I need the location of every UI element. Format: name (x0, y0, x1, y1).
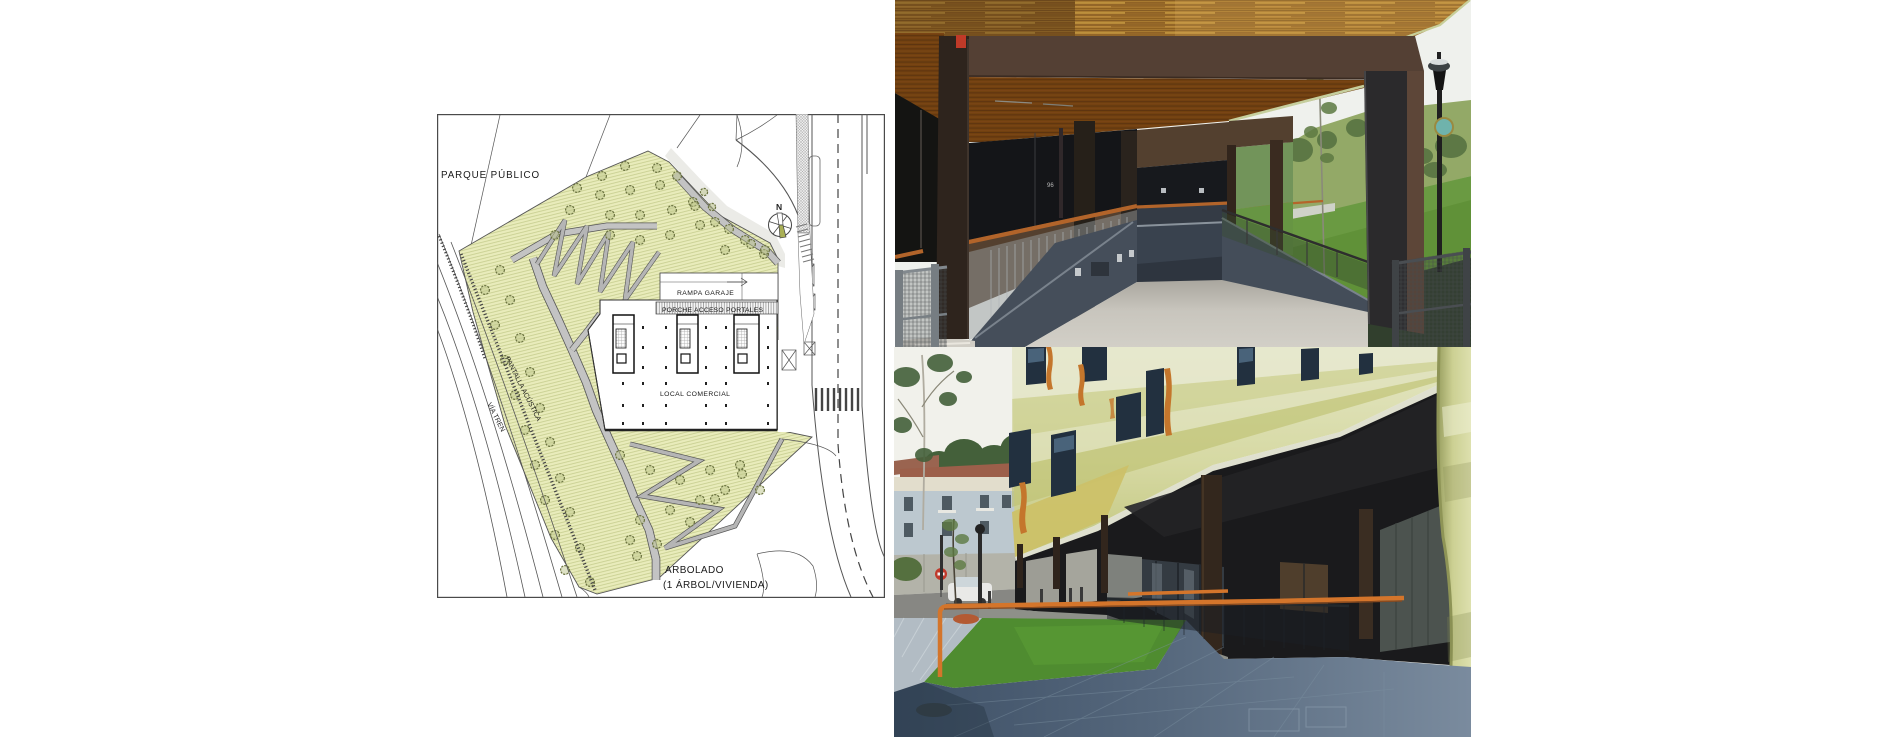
svg-text:RAMPA GARAJE: RAMPA GARAJE (677, 290, 734, 297)
svg-text:PORCHE ACCESO PORTALES: PORCHE ACCESO PORTALES (662, 307, 763, 314)
svg-text:PARQUE PÚBLICO: PARQUE PÚBLICO (441, 170, 540, 181)
svg-text:N: N (776, 202, 782, 212)
svg-text:(1 ÁRBOL/VIVIENDA): (1 ÁRBOL/VIVIENDA) (663, 578, 769, 591)
svg-text:ARBOLADO: ARBOLADO (665, 565, 724, 576)
svg-text:96: 96 (1047, 183, 1054, 189)
svg-text:LOCAL COMERCIAL: LOCAL COMERCIAL (660, 391, 730, 398)
